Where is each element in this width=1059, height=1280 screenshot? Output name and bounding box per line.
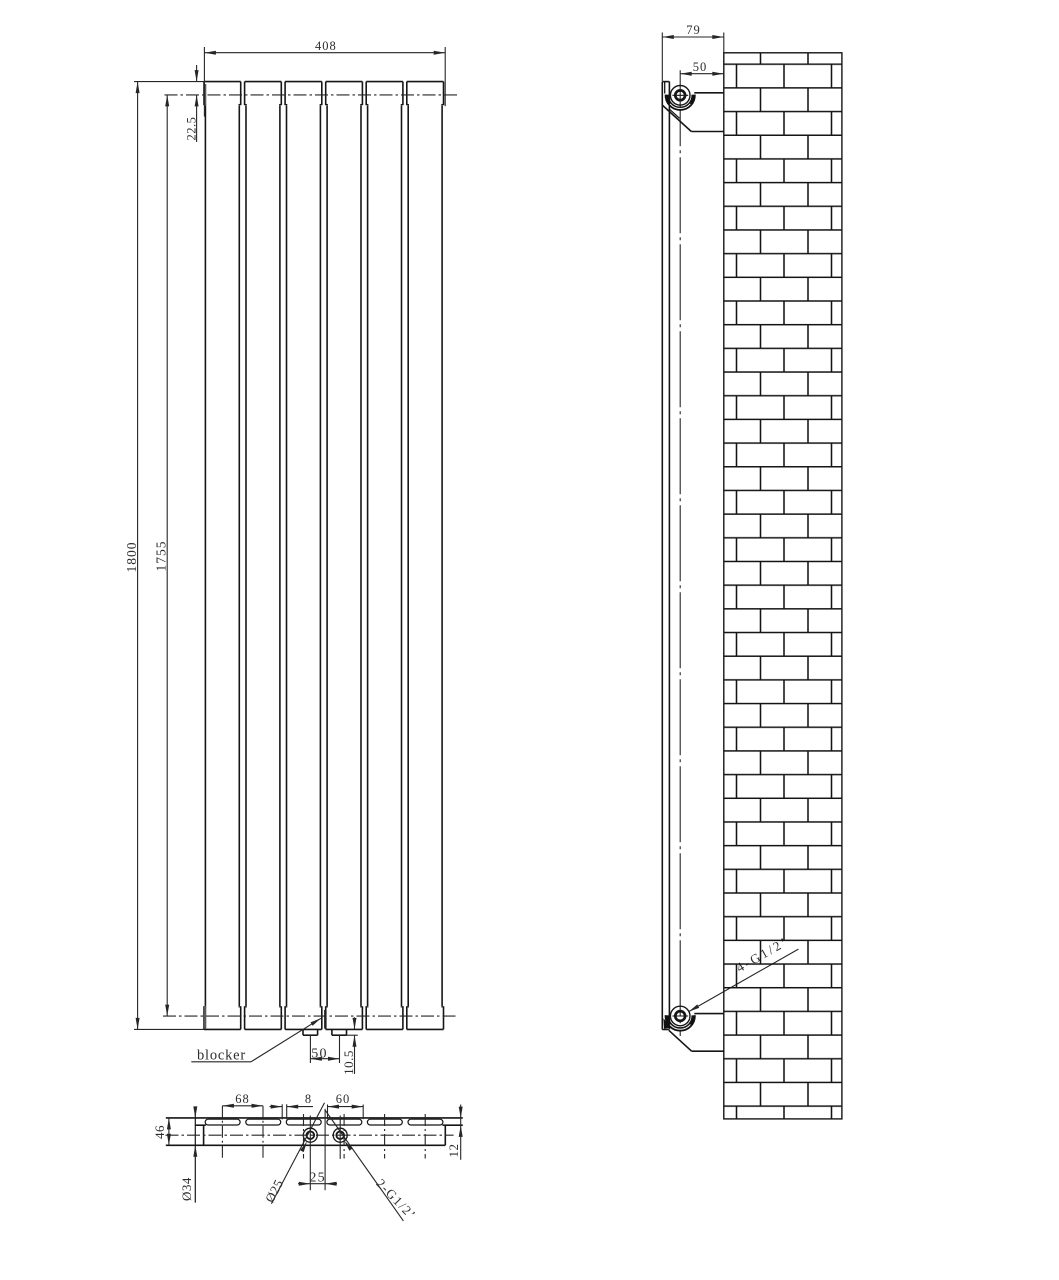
- svg-text:2-G1/2’: 2-G1/2’: [373, 1176, 419, 1223]
- svg-text:12: 12: [446, 1144, 461, 1158]
- svg-text:68: 68: [235, 1092, 250, 1106]
- svg-text:22.5: 22.5: [184, 117, 198, 141]
- svg-text:Ø25: Ø25: [262, 1177, 286, 1205]
- svg-text:46: 46: [152, 1125, 167, 1139]
- svg-text:60: 60: [336, 1092, 351, 1106]
- svg-text:25: 25: [309, 1171, 325, 1186]
- svg-text:blocker: blocker: [197, 1048, 246, 1064]
- svg-text:1800: 1800: [124, 542, 139, 573]
- svg-text:50: 50: [311, 1046, 327, 1061]
- svg-text:408: 408: [315, 39, 337, 53]
- svg-text:8: 8: [305, 1092, 311, 1106]
- svg-text:Ø34: Ø34: [179, 1177, 194, 1201]
- svg-text:1755: 1755: [153, 541, 168, 572]
- svg-text:10.5: 10.5: [341, 1050, 356, 1075]
- svg-text:79: 79: [686, 23, 701, 37]
- svg-text:50: 50: [693, 60, 708, 74]
